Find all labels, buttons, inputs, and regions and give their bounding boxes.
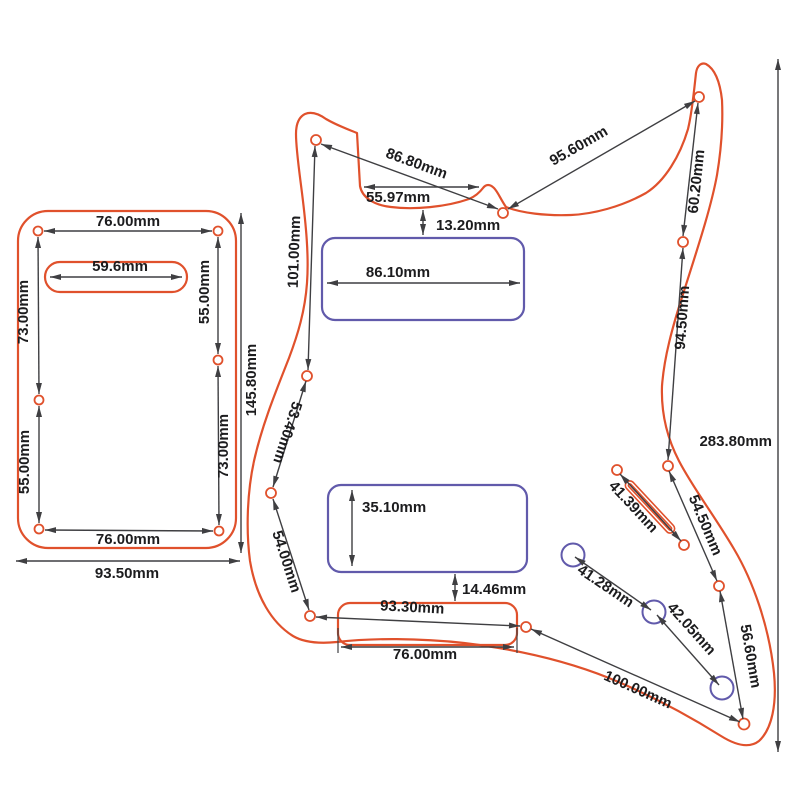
dim-label-left-mid: 53.40mm	[269, 399, 305, 465]
back-hole-mid-left	[35, 396, 44, 405]
pg-hole-bridge-right	[521, 622, 531, 632]
back-hole-top-left	[34, 227, 43, 236]
pickguard: 86.80mm 55.97mm 13.20mm 101.00mm 95.60mm…	[248, 59, 778, 752]
dim-line-neck-to-horn	[508, 101, 695, 209]
back-hole-bottom-left	[35, 525, 44, 534]
pg-hole-left-upper	[302, 371, 312, 381]
dim-label-back-bottom-width: 76.00mm	[96, 531, 160, 548]
back-hole-mid-right	[214, 356, 223, 365]
back-plate: 76.00mm 59.6mm 73.00mm 55.00mm 55.00mm 7…	[15, 211, 260, 582]
dim-label-upper-left-edge: 101.00mm	[285, 215, 305, 288]
dim-label-pocket-to-pickup: 13.20mm	[436, 217, 500, 234]
dim-label-right-bottom: 56.60mm	[736, 623, 764, 689]
dim-label-overall-height: 283.80mm	[699, 433, 772, 450]
dim-label-back-top-width: 76.00mm	[96, 213, 160, 230]
dim-label-bridge-cutout-width: 76.00mm	[393, 646, 457, 663]
pg-hole-top-horn	[694, 92, 704, 102]
pg-hole-upper-horn	[311, 135, 321, 145]
back-hole-top-right	[214, 227, 223, 236]
dim-line-bridge-holes	[316, 617, 520, 626]
dim-line-back-left-upper	[38, 237, 39, 394]
dim-label-bridge-holes: 93.30mm	[380, 597, 445, 617]
knob-hole-1	[562, 544, 585, 567]
dimension-drawing-page: 76.00mm 59.6mm 73.00mm 55.00mm 55.00mm 7…	[0, 0, 800, 800]
pg-hole-slot-top	[612, 465, 622, 475]
dim-label-back-overall-width: 93.50mm	[95, 565, 159, 582]
dim-label-pickup-to-bridge: 14.46mm	[462, 581, 526, 598]
dim-label-knobs-2-3: 42.05mm	[664, 599, 720, 658]
dim-label-back-overall-height: 145.80mm	[243, 344, 260, 417]
dim-label-back-left-lower: 55.00mm	[16, 430, 33, 494]
pg-hole-left-lower	[305, 611, 315, 621]
dim-label-back-right-upper: 55.00mm	[196, 260, 213, 324]
bridge-pickup-cutout	[328, 485, 527, 572]
dim-label-left-lower: 54.00mm	[268, 528, 304, 594]
dim-label-right-mid: 94.50mm	[672, 285, 693, 350]
dim-label-back-right-lower: 73.00mm	[215, 414, 232, 478]
pg-hole-right-mid	[663, 461, 673, 471]
back-hole-bottom-right	[215, 527, 224, 536]
dim-label-bridge-pickup-height: 35.10mm	[362, 499, 426, 516]
dim-label-back-slot-width: 59.6mm	[92, 258, 148, 275]
dim-label-knobs-1-2: 41.28mm	[574, 561, 637, 611]
dim-label-bridge-to-corner: 100.00mm	[601, 667, 674, 712]
dim-label-neck-to-horn: 95.60mm	[547, 123, 611, 170]
dim-label-neck-pickup-width: 86.10mm	[366, 264, 430, 281]
dim-label-horn-drop: 60.20mm	[685, 149, 709, 215]
dim-label-back-left-upper: 73.00mm	[15, 280, 32, 344]
pg-hole-right-upper	[678, 237, 688, 247]
dimension-drawing: 76.00mm 59.6mm 73.00mm 55.00mm 55.00mm 7…	[0, 0, 800, 800]
dim-line-right-mid	[668, 248, 683, 460]
pg-hole-right-lower	[714, 581, 724, 591]
dim-label-neck-pocket-width: 55.97mm	[366, 189, 430, 206]
pg-hole-left-mid	[266, 488, 276, 498]
pg-hole-bottom-corner	[739, 719, 750, 730]
dim-label-horn-to-neck: 86.80mm	[383, 145, 449, 183]
pg-hole-slot-bottom	[679, 540, 689, 550]
dim-line-upper-left-edge	[308, 146, 315, 370]
